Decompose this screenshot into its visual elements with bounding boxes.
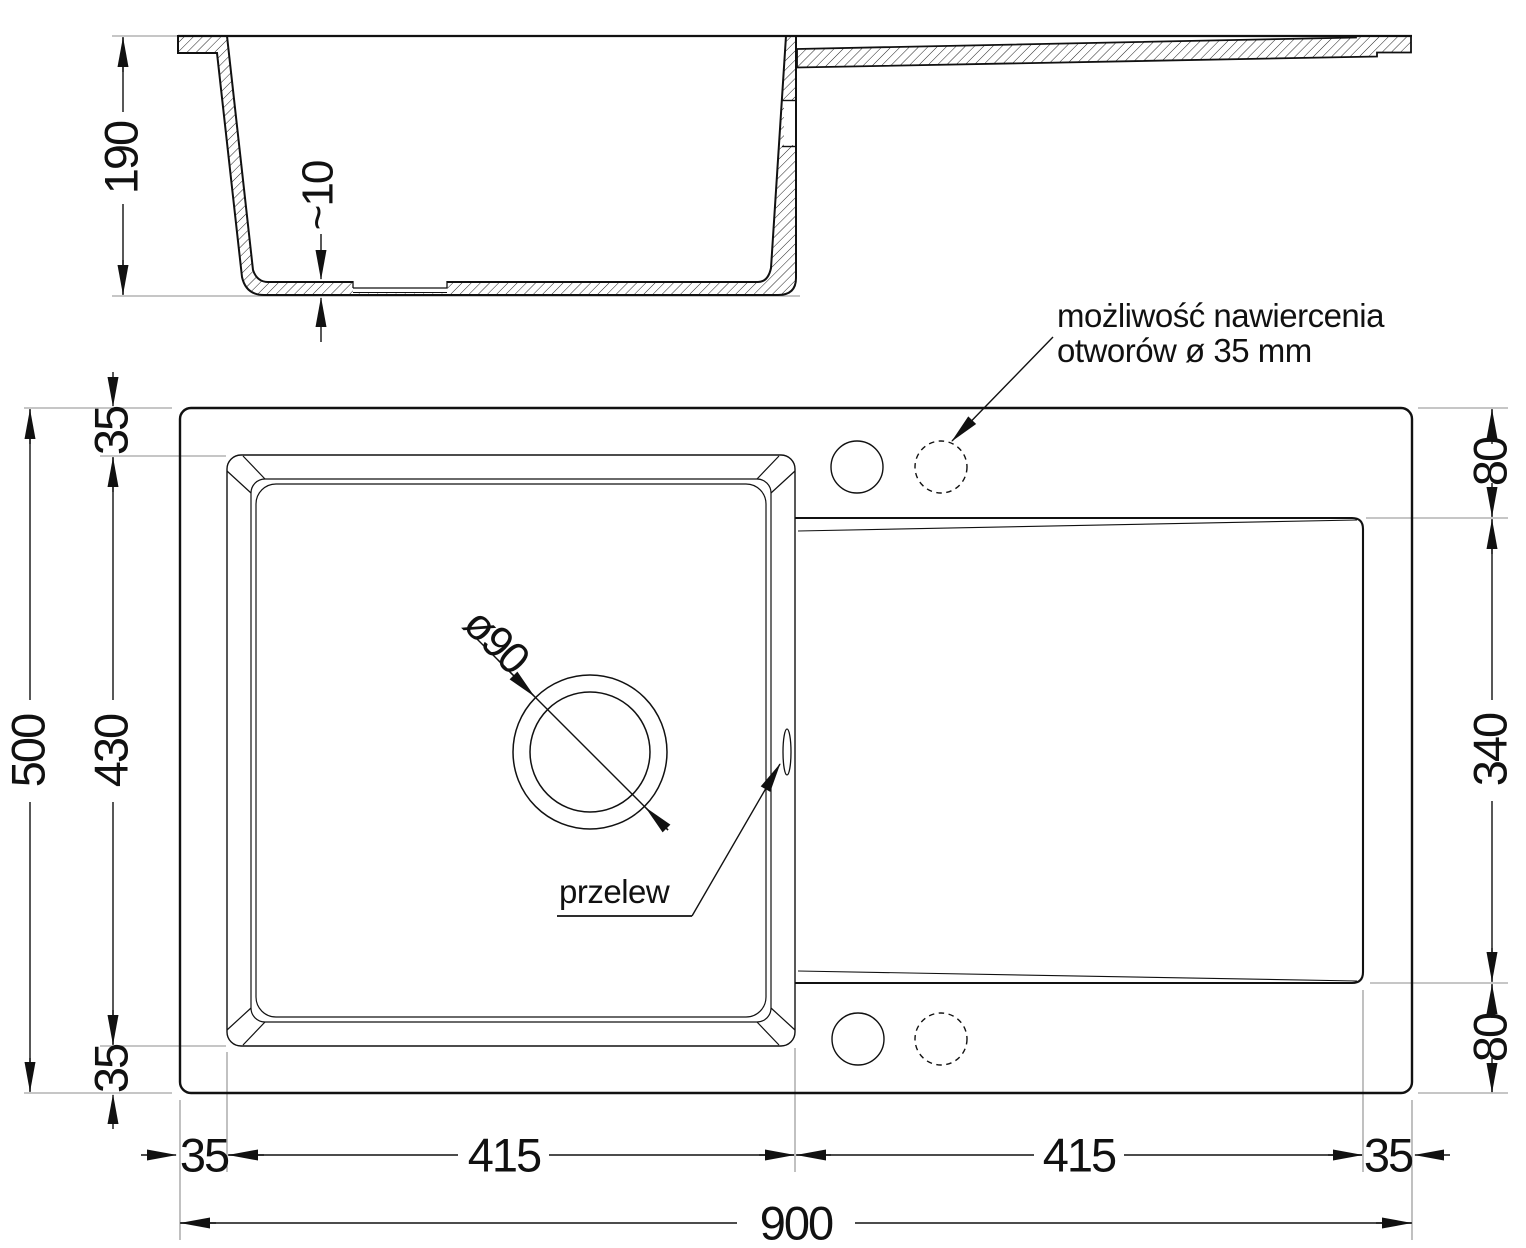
drill-note: możliwość nawiercenia otworów ø 35 mm: [952, 297, 1385, 441]
label-bottom-margin-right: 35: [1364, 1129, 1413, 1182]
label-right-bottom: 80: [1464, 1013, 1517, 1062]
drainer-edge: [795, 518, 1363, 983]
drill-note-leader-arrow: [952, 337, 1053, 441]
overflow-leader-arrow: [692, 764, 780, 916]
sink-outline: [180, 408, 1412, 1093]
dimension-right-bottom-80: 80: [1464, 984, 1517, 1092]
overflow-label-text: przelew: [559, 873, 670, 910]
overflow-opening-section: [782, 101, 796, 147]
dimension-bottom-margin-right-35: 35: [1364, 1129, 1450, 1182]
sink-drawing-canvas: 190 ~10: [0, 0, 1526, 1248]
label-drain-diameter: ø90: [454, 599, 538, 683]
label-basin-width: 415: [468, 1129, 541, 1182]
label-depth-190: 190: [95, 121, 148, 194]
faucet-holes: [831, 441, 967, 1065]
drainer-board: [795, 518, 1363, 983]
drainer-deck-section: [797, 36, 1411, 68]
technical-drawing-page: 190 ~10: [0, 0, 1526, 1248]
dimension-basin-depth-430: 430: [85, 457, 138, 1045]
drainer-slope-line-bottom: [798, 971, 1357, 981]
drill-note-text-line1: możliwość nawiercenia: [1057, 297, 1385, 334]
label-drainer-depth: 340: [1464, 713, 1517, 786]
dimension-overall-depth-500: 500: [2, 409, 55, 1092]
basin-corner-bevels: [227, 456, 795, 1045]
basin-rim-outer-edge: [227, 455, 795, 1046]
optional-hole-top: [915, 441, 967, 493]
drainer-slope-line-top: [798, 520, 1357, 531]
basin-section-cut: [178, 36, 796, 295]
label-drainer-width: 415: [1043, 1129, 1116, 1182]
drill-note-text-line2: otworów ø 35 mm: [1057, 332, 1312, 369]
dimension-drainer-width-415: 415: [796, 1129, 1362, 1182]
faucet-hole-bottom: [832, 1013, 884, 1065]
dimension-depth-190: 190: [95, 37, 148, 295]
optional-hole-bottom: [915, 1013, 967, 1065]
overflow-callout: przelew: [557, 764, 780, 916]
top-plan-view: możliwość nawiercenia otworów ø 35 mm pr…: [2, 297, 1517, 1248]
overflow-slot: [783, 729, 791, 775]
basin: [227, 455, 795, 1046]
label-right-top: 80: [1464, 437, 1517, 486]
label-overall-depth: 500: [2, 714, 55, 787]
dimension-base-thickness: ~10: [294, 161, 343, 342]
label-bottom-margin-left: 35: [180, 1129, 229, 1182]
label-basin-depth: 430: [85, 714, 138, 787]
dimension-basin-width-415: 415: [228, 1129, 794, 1182]
basin-bowl-edge: [256, 484, 766, 1017]
label-overall-width: 900: [760, 1197, 833, 1248]
faucet-hole-top: [831, 441, 883, 493]
label-left-margin-bottom: 35: [85, 1044, 138, 1093]
dimension-right-top-80: 80: [1464, 409, 1517, 517]
dimension-left-margin-bottom-35: 35: [85, 1044, 138, 1129]
drain-recess: [353, 281, 447, 294]
label-base-thickness: ~10: [294, 161, 343, 230]
dimension-overall-width-900: 900: [180, 1197, 1412, 1248]
dimension-drainer-depth-340: 340: [1464, 519, 1517, 982]
dimension-bottom-margin-left-35: 35: [141, 1129, 229, 1182]
basin-rim-inner-edge: [251, 479, 771, 1022]
dimension-left-margin-top-35: 35: [85, 372, 138, 455]
label-left-margin-top: 35: [85, 406, 138, 455]
